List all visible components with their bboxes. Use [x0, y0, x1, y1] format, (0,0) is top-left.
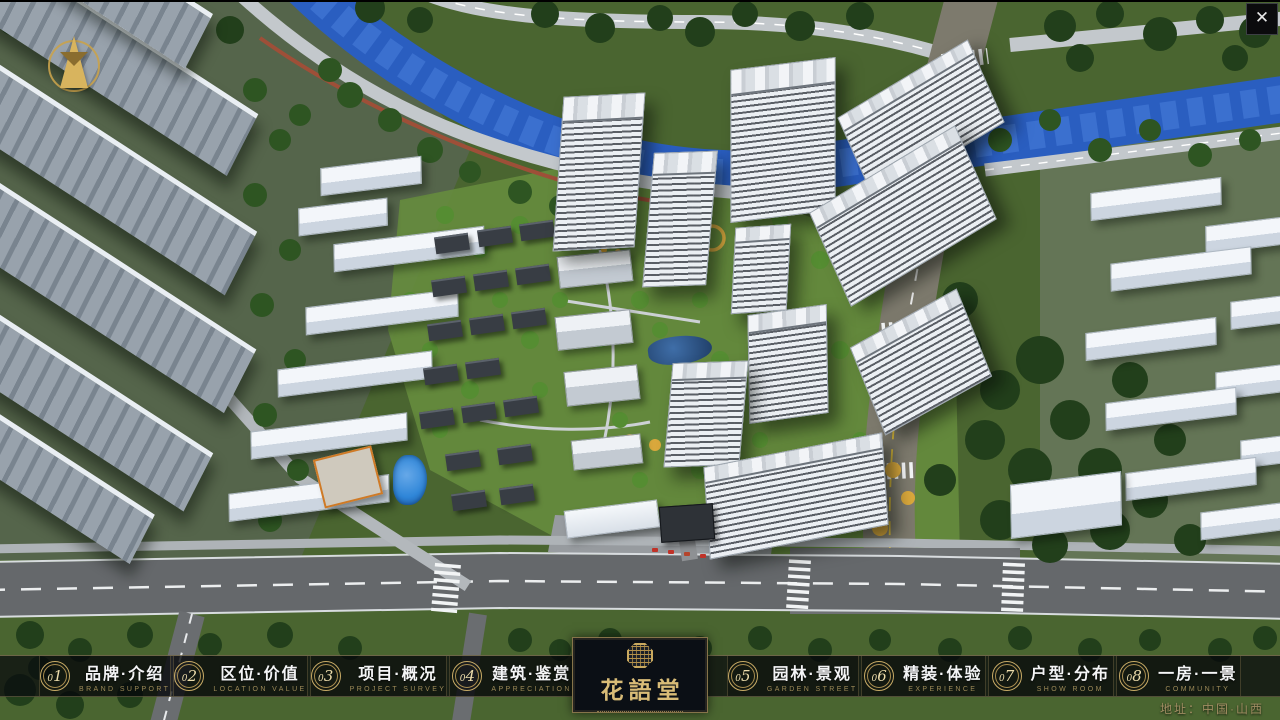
- nav-item-architecture[interactable]: 04 建筑·鉴赏APPRECIATION: [449, 656, 574, 696]
- residential-tower: [553, 92, 646, 251]
- nav-number-badge: 05: [728, 661, 758, 691]
- car: [684, 552, 690, 556]
- project-address: 地址：中国·山西: [1160, 700, 1264, 717]
- compass-north-icon: [42, 34, 106, 98]
- nav-label: 建筑·鉴赏: [492, 660, 571, 684]
- car: [700, 554, 706, 558]
- nav-label: 区位·价值: [220, 660, 299, 684]
- nav-number-badge: 08: [1119, 661, 1149, 691]
- nav-sublabel: PROJECT SURVEY: [350, 686, 447, 693]
- residential-tower: [642, 151, 718, 288]
- nav-label: 一房·一景: [1158, 660, 1237, 684]
- residential-tower: [730, 57, 835, 223]
- brand-logo-panel[interactable]: 花語堂: [572, 637, 708, 713]
- nav-sublabel: LOCATION VALUE: [213, 686, 306, 693]
- nav-sublabel: EXPERIENCE: [908, 686, 977, 693]
- nav-item-garden[interactable]: 05 园林·景观GARDEN STREET: [727, 656, 859, 696]
- residential-tower: [663, 360, 748, 467]
- nav-item-interior[interactable]: 06 精装·体验EXPERIENCE: [861, 656, 986, 696]
- brand-title: 花語堂: [596, 671, 685, 705]
- nav-sublabel: SHOW ROOM: [1037, 686, 1104, 693]
- top-edge-strip: [0, 0, 1280, 2]
- nav-number-badge: 02: [174, 661, 204, 691]
- nav-item-brand[interactable]: 01 品牌·介绍BRAND SUPPORT: [39, 656, 171, 696]
- nav-label: 园林·景观: [773, 660, 852, 684]
- nav-sublabel: COMMUNITY: [1165, 686, 1230, 693]
- nav-item-location[interactable]: 02 区位·价值LOCATION VALUE: [173, 656, 307, 696]
- nav-number-badge: 06: [864, 661, 894, 691]
- nav-item-views[interactable]: 08 一房·一景COMMUNITY: [1116, 656, 1241, 696]
- nav-item-floorplan[interactable]: 07 户型·分布SHOW ROOM: [988, 656, 1113, 696]
- brand-seal-icon: [627, 643, 653, 668]
- nav-number-badge: 01: [40, 661, 70, 691]
- sales-presentation-screen: ✕ 01 品牌·介绍BRAND SUPPORT 02 区位·价值LOCATION…: [0, 0, 1280, 720]
- nav-item-project[interactable]: 03 项目·概况PROJECT SURVEY: [310, 656, 448, 696]
- masterplan-3d-view[interactable]: [0, 0, 1280, 720]
- nav-label: 精装·体验: [903, 660, 982, 684]
- nav-label: 品牌·介绍: [85, 660, 164, 684]
- nav-label: 项目·概况: [358, 660, 437, 684]
- residential-tower: [747, 304, 828, 424]
- nav-sublabel: GARDEN STREET: [767, 686, 858, 693]
- nav-sublabel: BRAND SUPPORT: [79, 686, 170, 693]
- brand-tagline: [597, 708, 683, 712]
- nav-number-badge: 07: [992, 661, 1022, 691]
- entrance-gate: [659, 503, 715, 543]
- nav-number-badge: 03: [311, 661, 341, 691]
- car: [652, 548, 658, 552]
- nav-label: 户型·分布: [1031, 660, 1110, 684]
- close-icon[interactable]: ✕: [1246, 3, 1278, 35]
- residential-tower: [731, 224, 791, 314]
- car: [668, 550, 674, 554]
- nav-sublabel: APPRECIATION: [491, 686, 571, 693]
- nav-number-badge: 04: [452, 661, 482, 691]
